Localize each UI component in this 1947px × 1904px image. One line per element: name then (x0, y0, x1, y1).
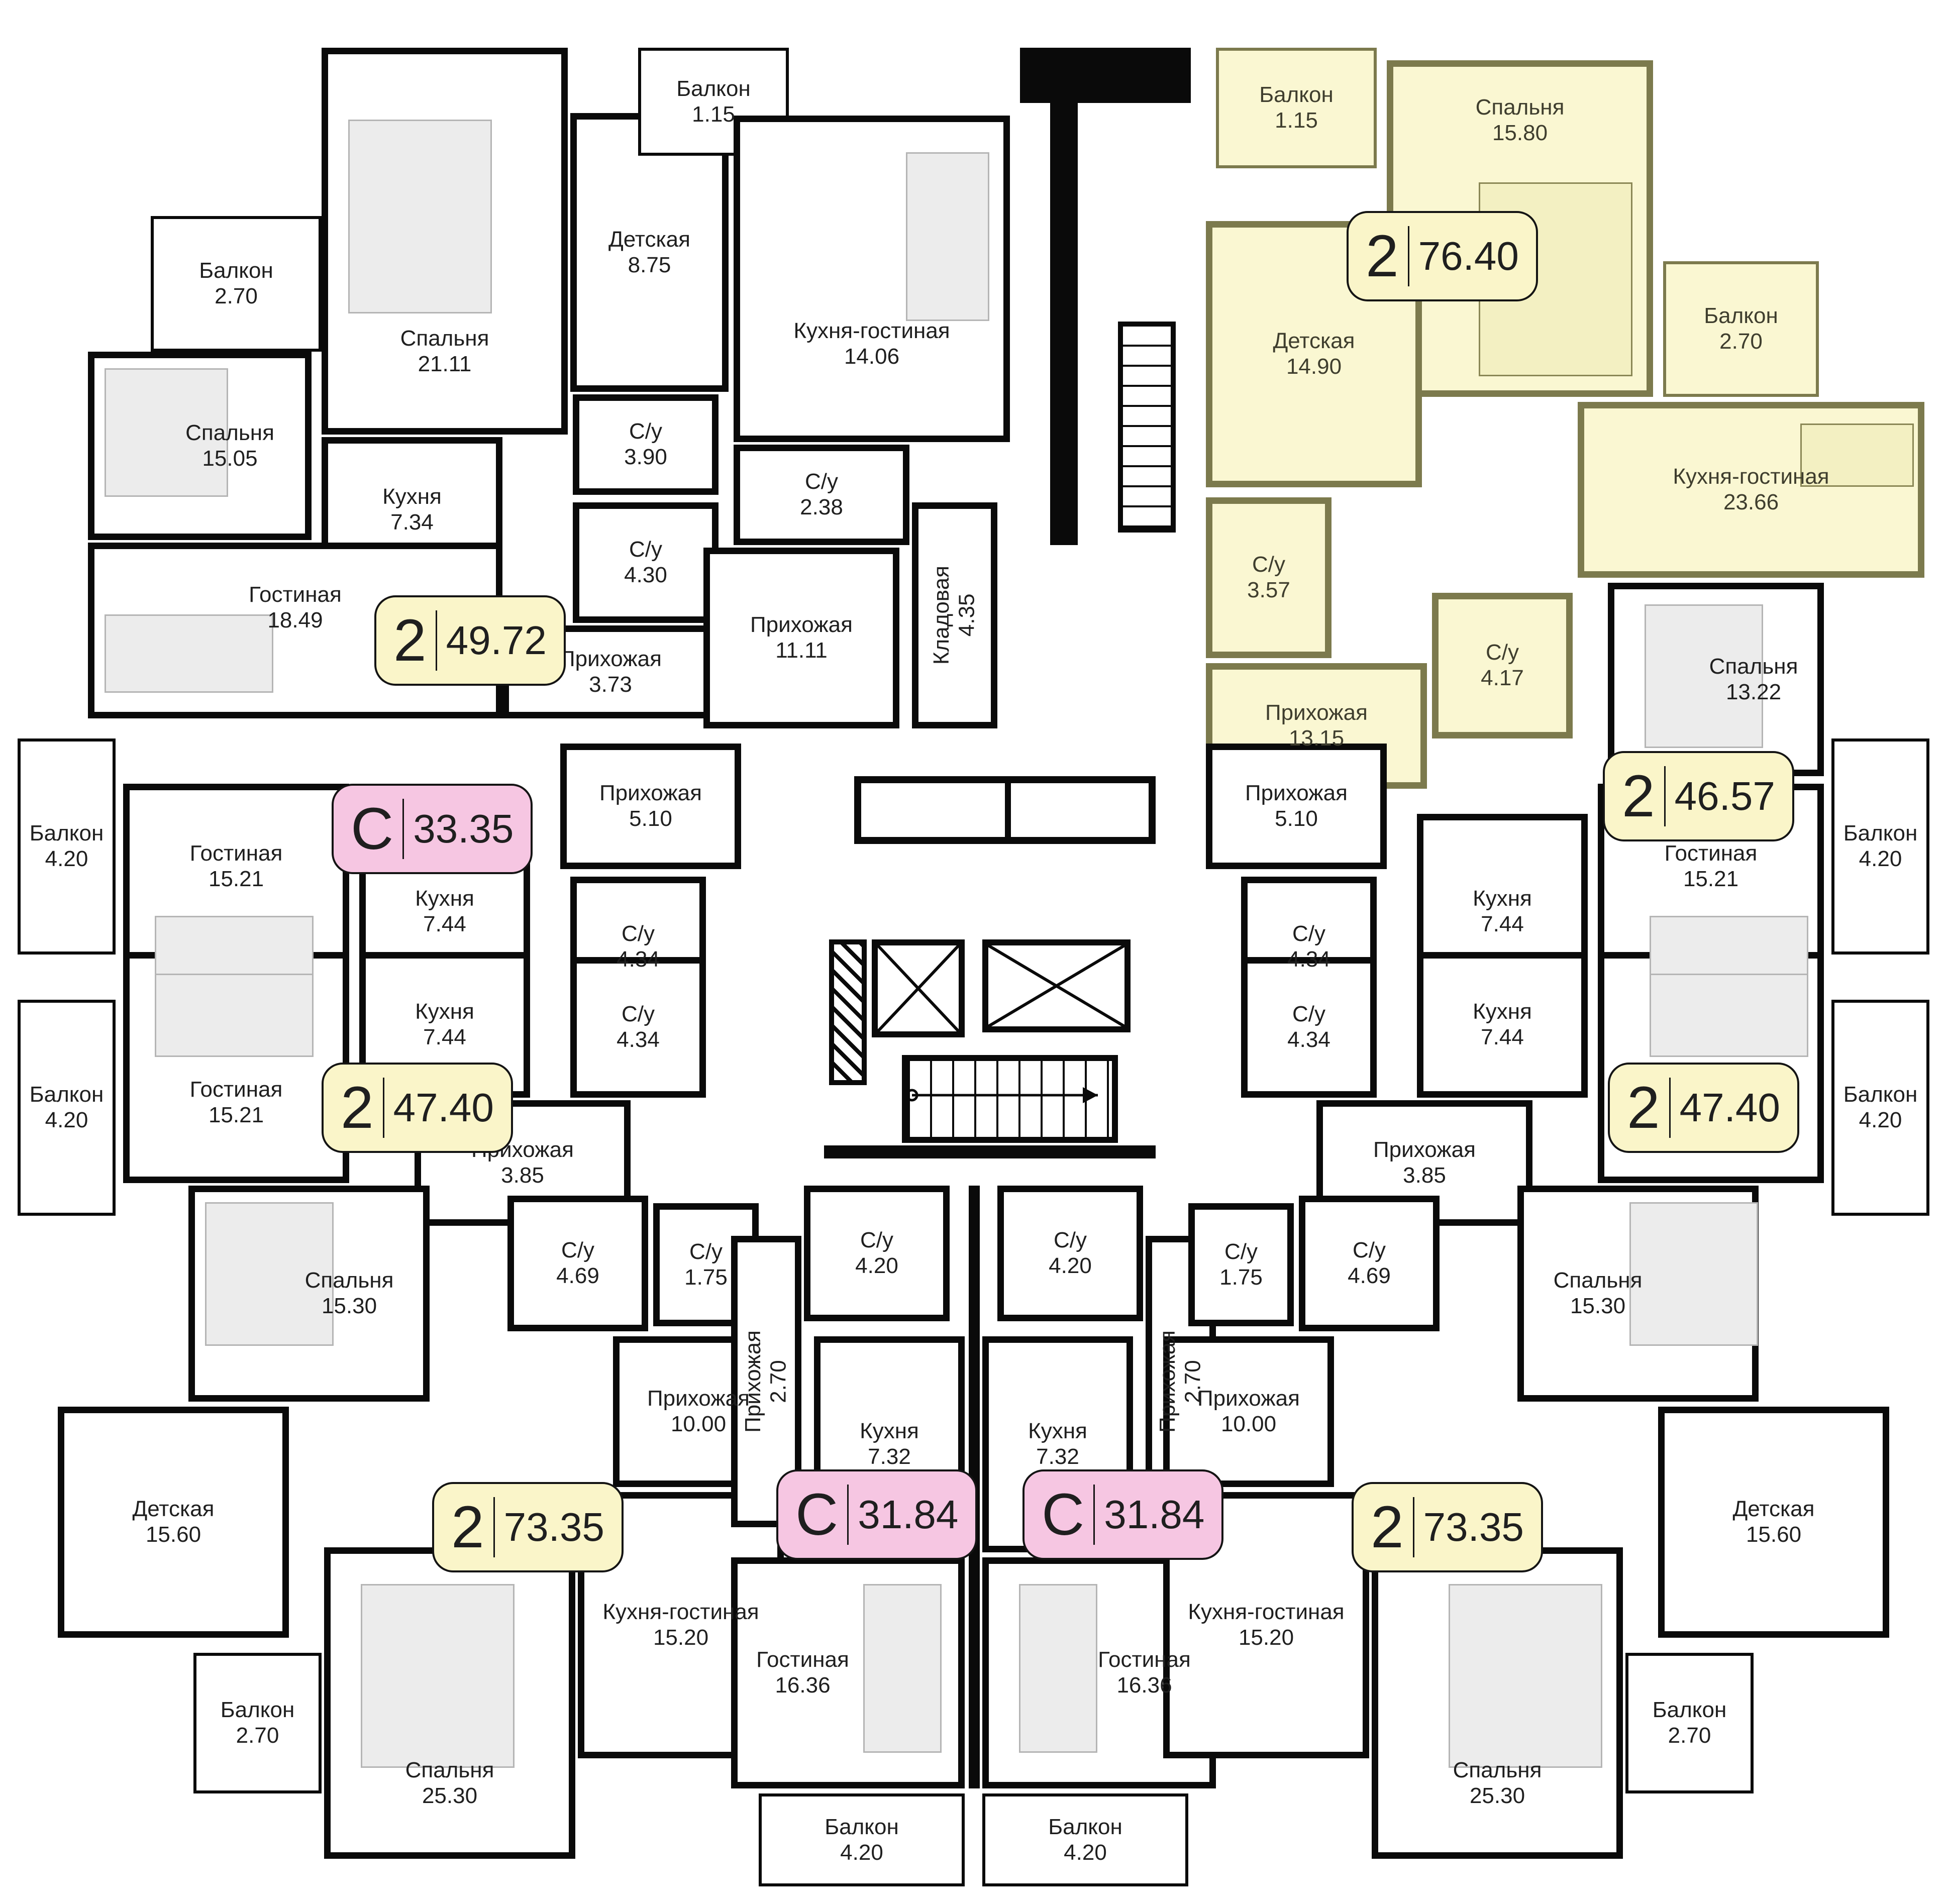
sofa-icon (105, 614, 273, 693)
room-bathroom: С/у4.30 (573, 502, 719, 623)
room-bedroom: Спальня15.05 (88, 352, 312, 540)
room-kids: Детская15.60 (1658, 1407, 1889, 1638)
apartment-badge: 249.72 (374, 595, 566, 686)
room-hallway: Прихожая5.10 (560, 744, 741, 869)
room-bedroom: Спальня25.30 (324, 1547, 575, 1859)
entrance-vestibule (854, 776, 1156, 844)
elevator-icon (872, 939, 965, 1037)
apartment-badge: 273.35 (432, 1482, 624, 1572)
apartment-badge: 273.35 (1352, 1482, 1543, 1572)
bed-icon (348, 120, 492, 313)
room-bedroom: Спальня21.11 (322, 48, 568, 435)
room-kitchen: Кухня7.44 (1417, 952, 1588, 1098)
room-bedroom: Спальня13.22 (1608, 583, 1824, 776)
wall-block (1020, 48, 1191, 103)
bed-icon (1449, 1584, 1602, 1768)
room-bathroom: С/у4.34 (570, 957, 706, 1098)
room-bedroom: Спальня25.30 (1372, 1547, 1623, 1859)
apartment-badge: С31.84 (776, 1469, 977, 1560)
shaft-hatched (829, 939, 867, 1085)
wall-block (1050, 103, 1078, 545)
room-balcony: Балкон2.70 (1663, 261, 1819, 397)
wall-block (824, 1145, 1156, 1158)
sofa-icon (906, 152, 989, 321)
room-balcony: Балкон4.20 (18, 738, 116, 955)
floor-plan: Балкон2.70 Спальня21.11 Детская8.75 Спал… (0, 0, 1947, 1904)
apartment-badge: 247.40 (322, 1063, 513, 1153)
elevator-icon (982, 939, 1131, 1032)
room-bedroom: Спальня15.30 (188, 1186, 430, 1402)
apartment-badge: 247.40 (1608, 1063, 1799, 1153)
room-living: Гостиная16.36 (731, 1557, 965, 1788)
apartment-badge: 276.40 (1347, 211, 1538, 301)
room-bathroom: С/у4.20 (997, 1186, 1143, 1321)
room-bathroom: С/у4.69 (507, 1196, 648, 1331)
room-balcony: Балкон4.20 (982, 1793, 1188, 1886)
room-balcony: Балкон2.70 (151, 216, 322, 352)
room-living: Гостиная15.21 (123, 952, 349, 1183)
apartment-badge: 246.57 (1603, 751, 1794, 841)
apartment-badge: С33.35 (332, 784, 533, 874)
room-kids: Детская15.60 (58, 1407, 289, 1638)
room-storage: Кладовая4.35 (912, 502, 997, 728)
bed-icon (361, 1584, 515, 1768)
sofa-icon (155, 974, 314, 1057)
sofa-icon (1650, 974, 1808, 1057)
room-bathroom: С/у4.69 (1299, 1196, 1440, 1331)
stairs-direction-arrow (902, 1080, 1118, 1110)
room-bathroom: С/у2.38 (734, 445, 909, 545)
room-bathroom: С/у4.17 (1432, 593, 1573, 738)
room-balcony: Балкон4.20 (759, 1793, 965, 1886)
room-hallway: Прихожая11.11 (703, 548, 899, 728)
room-balcony: Балкон2.70 (193, 1653, 322, 1793)
sofa-icon (863, 1584, 942, 1753)
stairs-icon (1118, 322, 1176, 533)
apartment-badge: С31.84 (1022, 1469, 1223, 1560)
room-balcony: Балкон4.20 (1831, 1000, 1929, 1216)
bed-icon (1629, 1202, 1758, 1346)
room-bathroom: С/у1.75 (1188, 1203, 1294, 1326)
room-kitchen-living: Кухня-гостиная14.06 (734, 116, 1010, 442)
room-bathroom: С/у4.34 (1241, 957, 1377, 1098)
sofa-icon (1019, 1584, 1097, 1753)
room-bathroom: С/у4.20 (804, 1186, 950, 1321)
room-balcony: Балкон4.20 (18, 1000, 116, 1216)
room-balcony: Балкон4.20 (1831, 738, 1929, 955)
room-kitchen-living: Кухня-гостиная23.66 (1578, 402, 1924, 578)
room-bathroom: С/у3.90 (573, 394, 719, 495)
room-bathroom: С/у3.57 (1206, 497, 1331, 658)
room-balcony: Балкон2.70 (1625, 1653, 1754, 1793)
room-balcony: Балкон1.15 (1216, 48, 1377, 168)
room-hallway: Прихожая5.10 (1206, 744, 1387, 869)
room-bedroom: Спальня15.30 (1517, 1186, 1759, 1402)
